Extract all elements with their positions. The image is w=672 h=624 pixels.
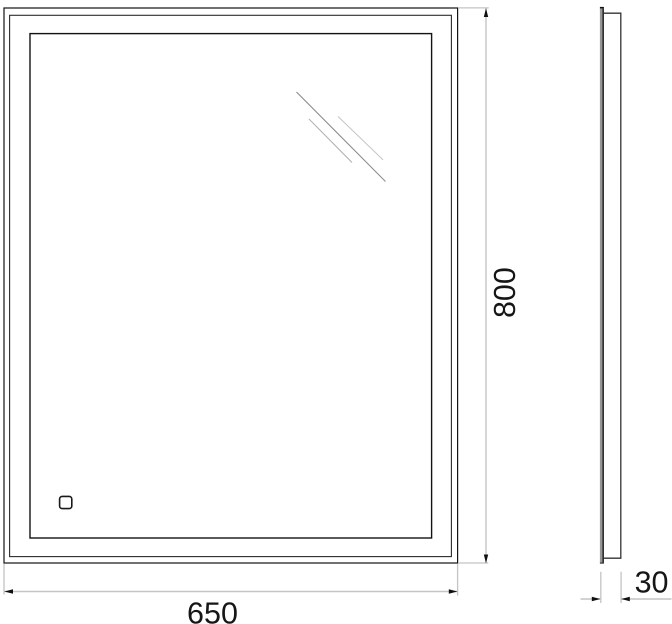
svg-text:650: 650 bbox=[187, 596, 238, 624]
svg-text:30: 30 bbox=[635, 565, 669, 599]
svg-text:800: 800 bbox=[488, 267, 522, 318]
